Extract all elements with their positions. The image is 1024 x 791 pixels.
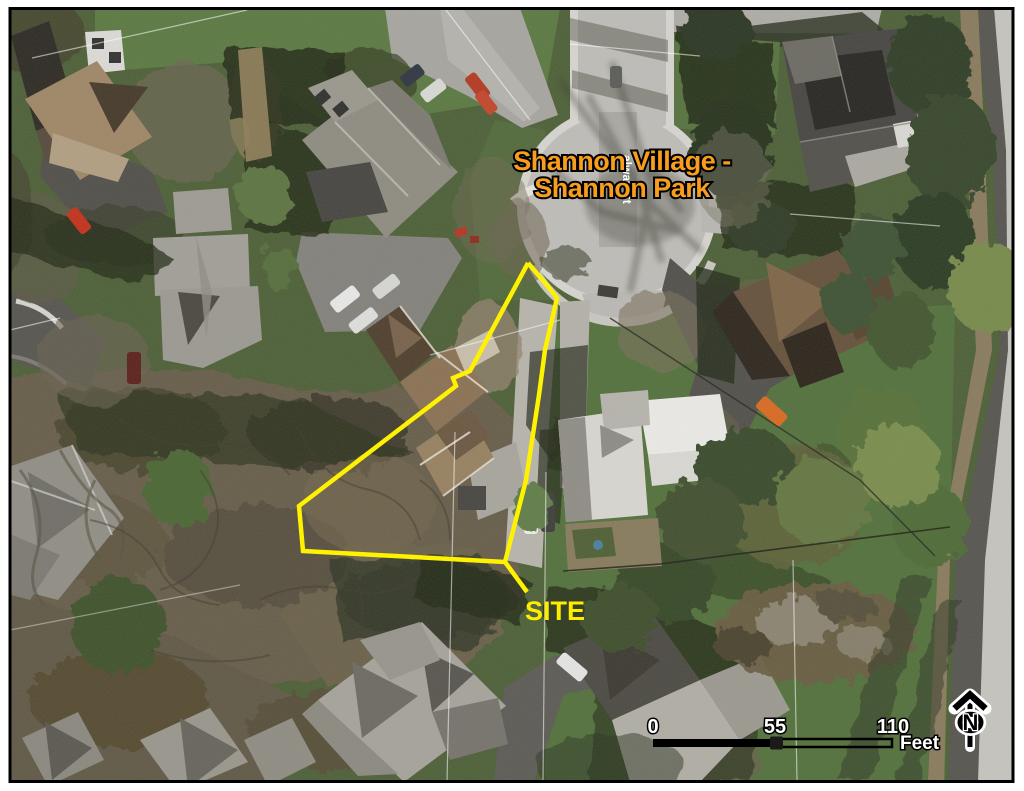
svg-text:Shannon Village -: Shannon Village - xyxy=(513,146,731,176)
svg-text:55: 55 xyxy=(764,716,786,738)
svg-text:N: N xyxy=(963,710,979,735)
svg-text:0: 0 xyxy=(647,716,658,738)
svg-text:Feet: Feet xyxy=(900,733,940,754)
svg-text:SITE: SITE xyxy=(525,596,585,626)
svg-text:Shannon Park: Shannon Park xyxy=(534,173,711,203)
